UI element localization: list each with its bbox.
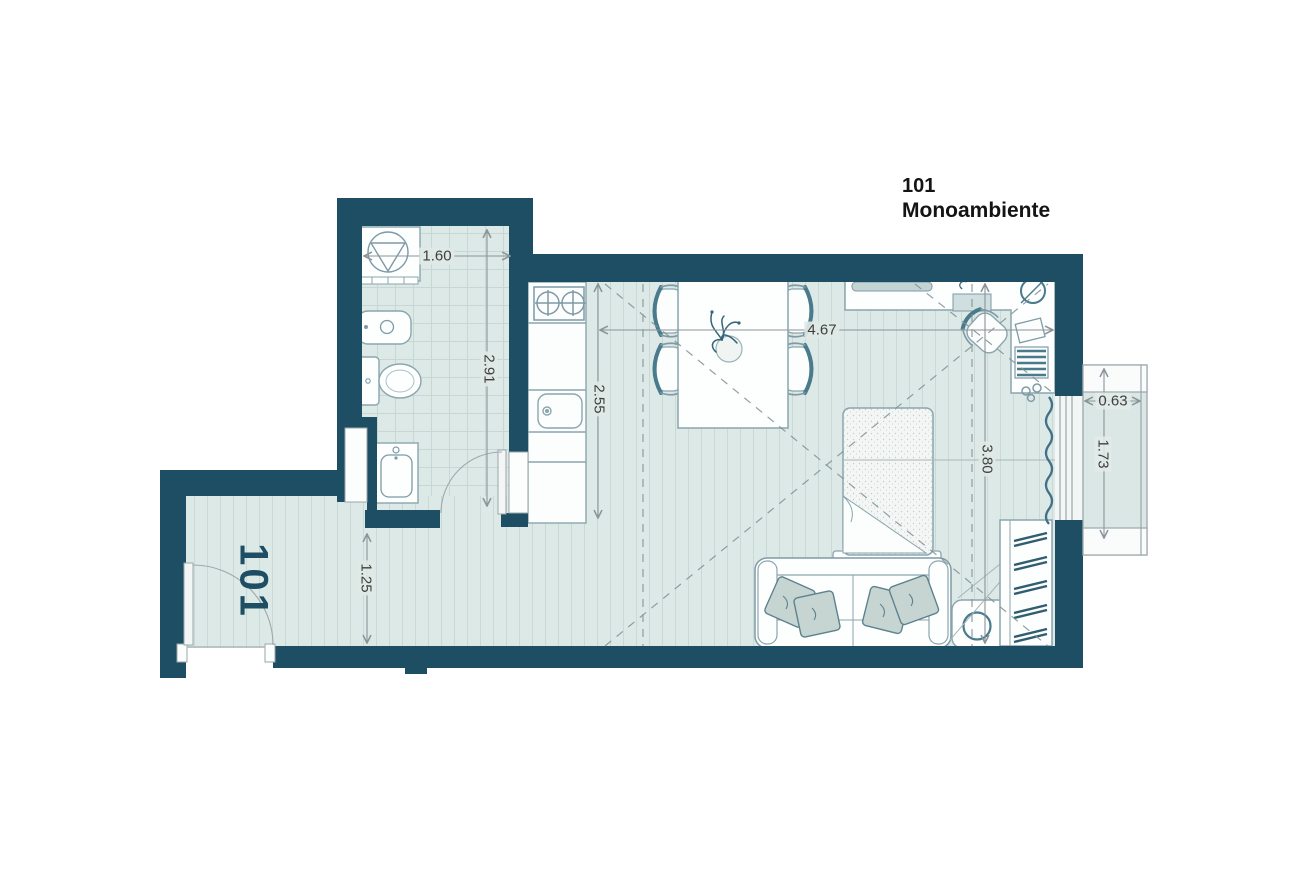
kitchen-sink-icon [538, 394, 582, 428]
bathroom-door-jamb [509, 452, 528, 513]
stove-icon [534, 287, 586, 320]
hall-room-number: 101 [231, 543, 276, 619]
dim-label-balcony-width: 0.63 [1095, 393, 1130, 410]
sink-vanity-icon [375, 443, 418, 503]
dim-label-living-depth: 3.80 [979, 441, 996, 476]
shaft [345, 428, 367, 502]
keyboard-icon [852, 282, 932, 291]
entry-jamb-left [177, 644, 187, 662]
bidet-icon [357, 311, 411, 344]
dim-label-living-width: 4.67 [804, 322, 839, 339]
unit-number: 101 [902, 174, 1050, 198]
sofa [755, 558, 951, 648]
book-stack-icon [1015, 347, 1048, 378]
dim-label-kitchen-depth: 2.55 [591, 381, 608, 416]
dim-label-balcony-depth: 1.73 [1095, 436, 1112, 471]
dim-label-bathroom-width: 1.60 [419, 248, 454, 265]
unit-type: Monoambiente [902, 198, 1050, 224]
dim-label-hall-width: 1.25 [358, 560, 375, 595]
entry-jamb-right [265, 644, 275, 662]
bed [833, 408, 941, 575]
window-glass [1055, 396, 1083, 520]
dim-label-bathroom-depth: 2.91 [481, 351, 498, 386]
floor-plan-page: 101 Monoambiente 101 1.60 2.91 2.55 4.67… [0, 0, 1296, 891]
plan-title: 101 Monoambiente [902, 174, 1050, 224]
